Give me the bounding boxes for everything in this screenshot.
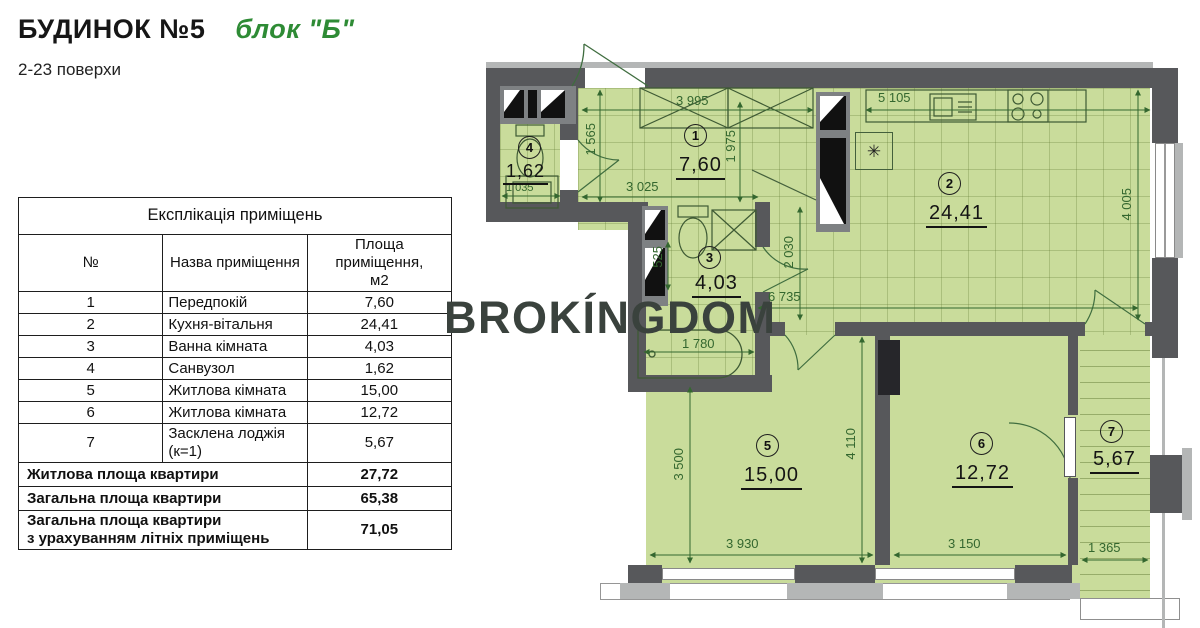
- row-area: 4,03: [307, 336, 451, 358]
- dim-3995: 3 995: [676, 93, 709, 108]
- room-number-7: 7: [1100, 420, 1123, 443]
- table-row: 6Житлова кімната12,72: [19, 402, 452, 424]
- row-name: Санвузол: [163, 358, 307, 380]
- row-name: Кухня-вітальня: [163, 314, 307, 336]
- room-number-4: 4: [518, 136, 541, 159]
- row-name: Засклена лоджія (к=1): [163, 424, 307, 463]
- dim-525: 525: [650, 246, 665, 268]
- building-title: БУДИНОК №5: [18, 14, 205, 44]
- row-name: Житлова кімната: [163, 402, 307, 424]
- dim-4110: 4 110: [843, 428, 858, 460]
- diagonal-edge: [752, 170, 816, 200]
- row-area: 5,67: [307, 424, 451, 463]
- row-area: 15,00: [307, 380, 451, 402]
- room-number-6: 6: [970, 432, 993, 455]
- room-area-1: 7,60: [676, 154, 725, 180]
- dim-3025: 3 025: [626, 179, 659, 194]
- door-entrance: [572, 44, 648, 86]
- block-title: блок "Б": [235, 14, 354, 44]
- row-num: 2: [19, 314, 163, 336]
- washing-machine-icon: [712, 210, 756, 250]
- asterisk-symbol: ✳: [855, 132, 893, 170]
- total-area: 65,38: [307, 487, 451, 511]
- total-area: 71,05: [307, 511, 451, 550]
- room-area-6: 12,72: [952, 462, 1013, 488]
- dim-2030: 2 030: [781, 236, 796, 269]
- wardrobe-icon: [640, 88, 813, 128]
- row-name: Ванна кімната: [163, 336, 307, 358]
- dim-3930: 3 930: [726, 536, 759, 551]
- col-header-num: №: [19, 235, 163, 292]
- row-area: 12,72: [307, 402, 451, 424]
- kitchen-sink-icon: [930, 94, 976, 120]
- room-number-5: 5: [756, 434, 779, 457]
- row-area: 24,41: [307, 314, 451, 336]
- col-header-area: Площа приміщення, м2: [307, 235, 451, 292]
- row-name: Житлова кімната: [163, 380, 307, 402]
- shaft-block-mid: [816, 92, 850, 232]
- shaft-block-left: [500, 86, 576, 124]
- row-num: 1: [19, 292, 163, 314]
- table-row: 5Житлова кімната15,00: [19, 380, 452, 402]
- table-row: 2Кухня-вітальня24,41: [19, 314, 452, 336]
- total-area: 27,72: [307, 463, 451, 487]
- room-number-2: 2: [938, 172, 961, 195]
- total-name: Загальна площа квартири: [19, 487, 308, 511]
- room-area-5: 15,00: [741, 464, 802, 490]
- stove-icon: [1008, 90, 1048, 122]
- room-area-7: 5,67: [1090, 448, 1139, 474]
- dim-1975: 1 975: [723, 130, 738, 163]
- room-number-1: 1: [684, 124, 707, 147]
- total-with-summer-row: Загальна площа квартири з урахуванням лі…: [19, 511, 452, 550]
- row-num: 7: [19, 424, 163, 463]
- table-row: 7Засклена лоджія (к=1)5,67: [19, 424, 452, 463]
- col-header-name: Назва приміщення: [163, 235, 307, 292]
- dim-4005: 4 005: [1119, 188, 1134, 221]
- table-caption-row: Експлікація приміщень: [19, 198, 452, 235]
- door-room5: [785, 335, 835, 370]
- table-header-row: № Назва приміщення Площа приміщення, м2: [19, 235, 452, 292]
- watermark: BROKÍNGDOM: [444, 292, 776, 344]
- total-living-row: Житлова площа квартири27,72: [19, 463, 452, 487]
- door-kitchen-loggia: [1085, 290, 1145, 324]
- table-row: 4Санвузол1,62: [19, 358, 452, 380]
- row-num: 3: [19, 336, 163, 358]
- table-row: 3Ванна кімната4,03: [19, 336, 452, 358]
- room-area-4: 1,62: [503, 161, 548, 185]
- door-leaf: [1064, 417, 1076, 477]
- total-name: Житлова площа квартири: [19, 463, 308, 487]
- room-number-3: 3: [698, 246, 721, 269]
- dim-5105: 5 105: [878, 90, 911, 105]
- dim-3500: 3 500: [671, 448, 686, 481]
- row-num: 4: [19, 358, 163, 380]
- total-overall-row: Загальна площа квартири65,38: [19, 487, 452, 511]
- total-name: Загальна площа квартири з урахуванням лі…: [19, 511, 308, 550]
- table-caption: Експлікація приміщень: [19, 198, 452, 235]
- row-num: 6: [19, 402, 163, 424]
- row-num: 5: [19, 380, 163, 402]
- explication-table: Експлікація приміщень № Назва приміщення…: [18, 197, 452, 550]
- floors-subtitle: 2-23 поверхи: [18, 60, 121, 80]
- row-area: 1,62: [307, 358, 451, 380]
- dim-1565: 1 565: [583, 123, 598, 156]
- page-title: БУДИНОК №5блок "Б": [18, 14, 355, 45]
- door-room6-loggia: [1009, 423, 1070, 478]
- room-area-2: 24,41: [926, 202, 987, 228]
- table-row: 1Передпокій7,60: [19, 292, 452, 314]
- dim-1365: 1 365: [1088, 540, 1121, 555]
- dim-3150: 3 150: [948, 536, 981, 551]
- row-area: 7,60: [307, 292, 451, 314]
- row-name: Передпокій: [163, 292, 307, 314]
